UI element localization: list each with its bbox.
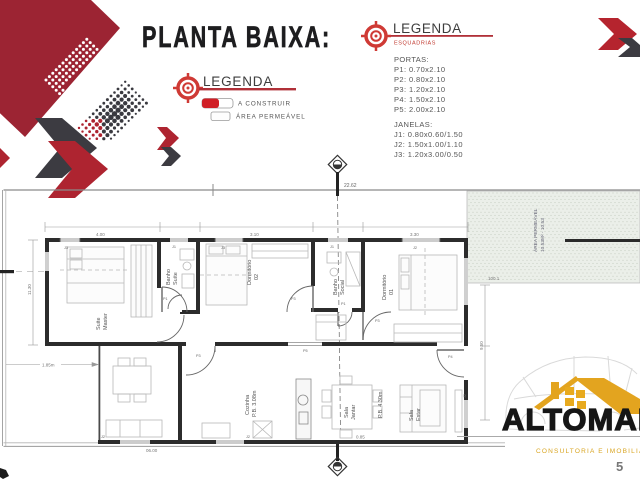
svg-text:J2: J2 <box>101 435 105 439</box>
svg-text:Banho: Banho <box>333 279 339 295</box>
svg-text:PORTAS:: PORTAS: <box>394 55 429 64</box>
svg-text:02: 02 <box>254 274 260 280</box>
svg-text:3.10: 3.10 <box>250 232 259 237</box>
svg-text:Sala: Sala <box>409 409 415 421</box>
svg-text:Jantar: Jantar <box>351 405 357 420</box>
svg-text:06.00: 06.00 <box>146 448 158 453</box>
svg-text:ÁREA PERMEÁVEL: ÁREA PERMEÁVEL <box>532 208 539 252</box>
svg-text:10.53M² - 10.53: 10.53M² - 10.53 <box>540 218 546 252</box>
svg-text:Dormitório: Dormitório <box>247 260 253 285</box>
svg-text:Cozinha: Cozinha <box>245 394 251 415</box>
svg-text:1.85m: 1.85m <box>42 363 55 368</box>
svg-text:P2: 0.80x2.10: P2: 0.80x2.10 <box>394 75 446 84</box>
svg-text:4.00: 4.00 <box>96 232 105 237</box>
svg-text:Sala: Sala <box>344 406 350 418</box>
svg-text:PLANTA BAIXA:: PLANTA BAIXA: <box>142 21 331 54</box>
svg-text:Suite: Suite <box>96 317 102 330</box>
svg-text:A CONSTRUIR: A CONSTRUIR <box>238 101 291 108</box>
svg-text:LEGENDA: LEGENDA <box>203 74 273 89</box>
svg-text:P.B. 3.08m: P.B. 3.08m <box>252 390 258 417</box>
svg-text:3.30: 3.30 <box>410 232 419 237</box>
svg-text:J2: J2 <box>246 435 250 439</box>
svg-text:P3: P3 <box>196 354 201 358</box>
svg-text:LEGENDA: LEGENDA <box>393 21 462 36</box>
svg-text:Social: Social <box>340 280 346 295</box>
svg-text:Suíte: Suíte <box>173 272 179 285</box>
svg-text:P1: 0.70x2.10: P1: 0.70x2.10 <box>394 65 446 74</box>
svg-text:J3: J3 <box>221 246 225 250</box>
svg-text:ESQUADRIAS: ESQUADRIAS <box>394 41 436 47</box>
svg-text:J1: J1 <box>172 245 176 249</box>
svg-text:J1: 0.80x0.60/1.50: J1: 0.80x0.60/1.50 <box>394 130 463 139</box>
svg-text:JANELAS:: JANELAS: <box>394 120 433 129</box>
svg-text:Banho: Banho <box>166 269 172 285</box>
svg-text:P3: 1.20x2.10: P3: 1.20x2.10 <box>394 85 446 94</box>
svg-text:0.85: 0.85 <box>356 435 365 440</box>
svg-text:Master: Master <box>103 313 109 330</box>
svg-text:J3: 1.20x3.00/0.50: J3: 1.20x3.00/0.50 <box>394 150 463 159</box>
svg-text:P4: 1.50x2.10: P4: 1.50x2.10 <box>394 95 446 104</box>
svg-text:Dormitório: Dormitório <box>382 275 388 300</box>
svg-text:J3: J3 <box>64 246 68 250</box>
svg-text:Estar: Estar <box>416 408 422 421</box>
svg-text:J1: J1 <box>330 245 334 249</box>
svg-text:100.1: 100.1 <box>488 276 500 281</box>
svg-text:CONSULTORIA E IMOBILIÁRIA: CONSULTORIA E IMOBILIÁRIA <box>536 446 640 455</box>
svg-text:ÁREA PERMEÁVEL: ÁREA PERMEÁVEL <box>236 112 306 121</box>
svg-text:J2: J2 <box>463 394 467 398</box>
svg-text:22.62: 22.62 <box>344 183 357 189</box>
svg-text:P1: P1 <box>163 297 168 301</box>
svg-text:P4: P4 <box>448 355 453 359</box>
svg-text:J2: 1.50x1.00/1.10: J2: 1.50x1.00/1.10 <box>394 140 463 149</box>
svg-text:P5: 2.00x2.10: P5: 2.00x2.10 <box>394 105 446 114</box>
svg-text:J2: J2 <box>413 246 417 250</box>
svg-text:P1: P1 <box>341 302 346 306</box>
svg-text:9.50: 9.50 <box>479 341 484 350</box>
svg-text:P5: P5 <box>303 349 308 353</box>
svg-text:P.B. 4.30m: P.B. 4.30m <box>378 391 384 418</box>
svg-text:P3: P3 <box>291 297 296 301</box>
svg-text:11.30: 11.30 <box>27 284 32 295</box>
svg-text:5: 5 <box>616 459 623 474</box>
svg-text:ALTOMAR: ALTOMAR <box>502 402 640 437</box>
svg-text:P3: P3 <box>375 319 380 323</box>
svg-text:01: 01 <box>389 289 395 295</box>
